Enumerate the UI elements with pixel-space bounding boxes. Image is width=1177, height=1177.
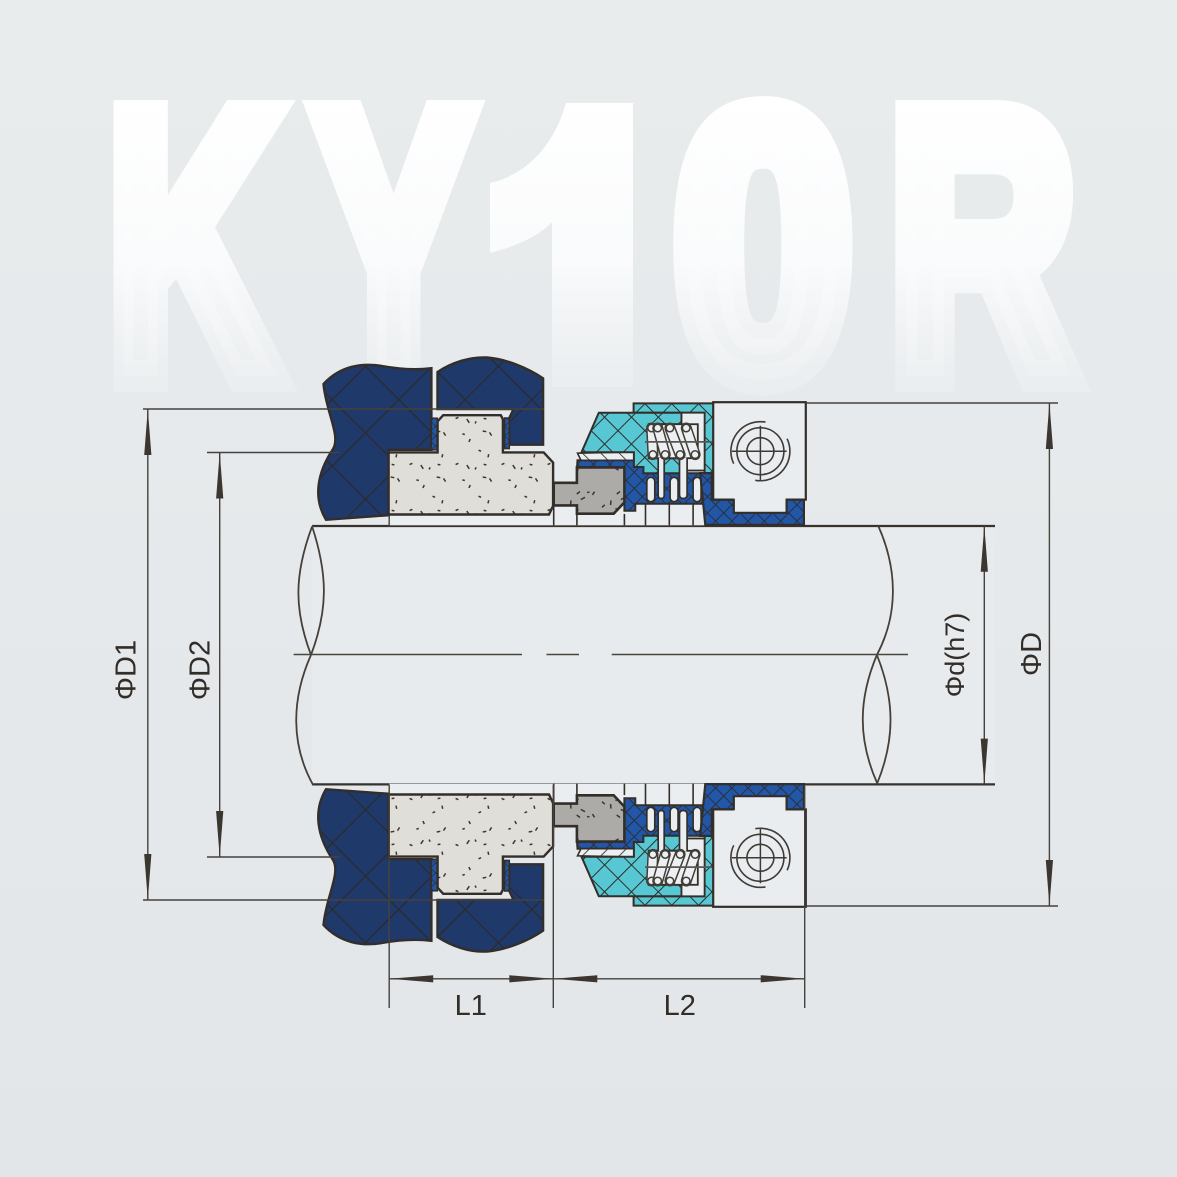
svg-text:ΦD: ΦD [1016,632,1048,676]
svg-text:L2: L2 [664,990,696,1022]
svg-text:Φd(h7): Φd(h7) [940,613,970,698]
svg-text:R: R [889,35,1076,457]
svg-text:L1: L1 [455,990,487,1022]
svg-text:0: 0 [674,35,852,457]
svg-text:K: K [108,35,280,457]
svg-text:ΦD2: ΦD2 [185,640,217,700]
svg-text:ΦD1: ΦD1 [111,640,143,700]
